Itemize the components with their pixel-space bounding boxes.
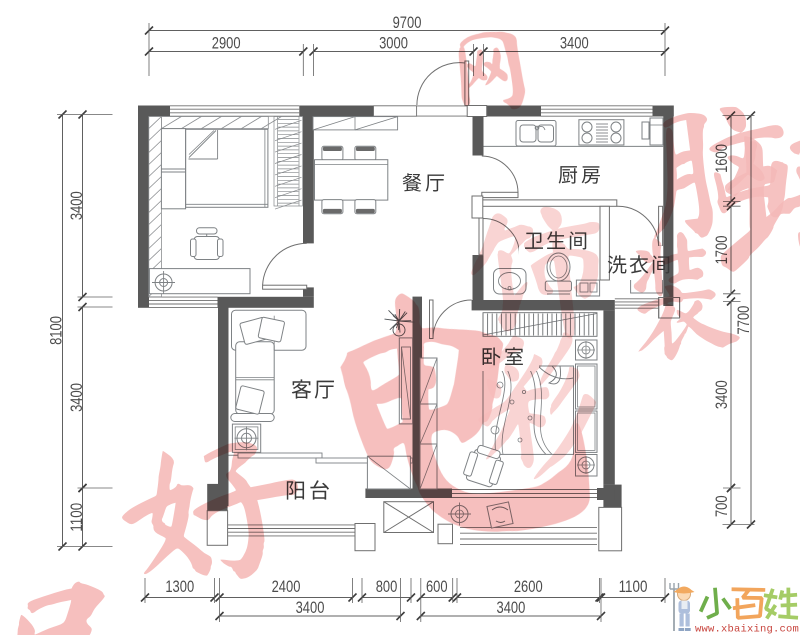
svg-text:3400: 3400 xyxy=(712,380,731,409)
svg-text:600: 600 xyxy=(426,577,448,596)
svg-text:3400: 3400 xyxy=(296,598,325,617)
svg-text:3400: 3400 xyxy=(67,191,86,220)
svg-text:2900: 2900 xyxy=(212,34,241,53)
svg-text:2600: 2600 xyxy=(514,577,543,596)
svg-text:3400: 3400 xyxy=(67,383,86,412)
svg-text:800: 800 xyxy=(376,577,398,596)
svg-text:1100: 1100 xyxy=(67,503,86,532)
svg-text:7700: 7700 xyxy=(734,306,753,335)
svg-text:3000: 3000 xyxy=(379,34,408,53)
svg-text:2400: 2400 xyxy=(272,577,301,596)
svg-text:1100: 1100 xyxy=(619,577,648,596)
svg-text:3400: 3400 xyxy=(560,34,589,53)
svg-text:3400: 3400 xyxy=(497,598,526,617)
svg-text:9700: 9700 xyxy=(393,13,422,32)
svg-text:8100: 8100 xyxy=(47,316,66,345)
svg-text:www.xbaixing.com: www.xbaixing.com xyxy=(695,624,799,636)
svg-text:1300: 1300 xyxy=(165,577,194,596)
svg-text:700: 700 xyxy=(712,495,731,517)
